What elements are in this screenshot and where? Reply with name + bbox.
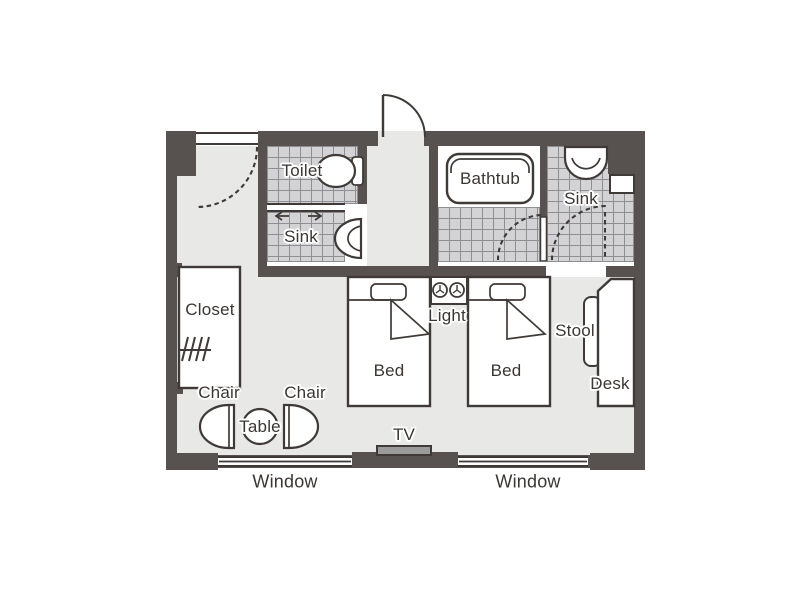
label-tv: TV: [393, 425, 415, 445]
label-sink-right: Sink: [564, 189, 598, 209]
tv-icon: [377, 446, 431, 455]
closet-icon: [179, 267, 240, 388]
label-bed-left: Bed: [374, 361, 405, 381]
label-closet: Closet: [185, 300, 234, 320]
label-chair-right: Chair: [284, 383, 326, 403]
label-light: Light: [428, 306, 466, 326]
bed-right-icon: [468, 277, 550, 406]
entry-door-icon: [383, 95, 425, 137]
floor-plan: Toilet Sink Bathtub Sink Closet Chair Ch…: [0, 0, 800, 600]
label-desk: Desk: [590, 374, 630, 394]
fixtures-layer: [0, 0, 800, 600]
bathtub-door-icon: [498, 215, 547, 261]
label-table: Table: [239, 417, 281, 437]
bed-left-icon: [348, 277, 430, 406]
toilet-icon: [317, 155, 363, 187]
door-swing-arc-left: [197, 147, 257, 207]
chair-right-icon: [284, 405, 318, 448]
label-bed-right: Bed: [491, 361, 522, 381]
sliding-door-arrows-icon: [276, 212, 321, 220]
label-toilet: Toilet: [282, 161, 323, 181]
label-sink-left: Sink: [284, 227, 318, 247]
sink-room-door-swing: [552, 206, 606, 260]
label-bathtub: Bathtub: [460, 169, 520, 189]
sink-left-icon: [335, 219, 361, 258]
label-window-right: Window: [495, 472, 560, 493]
label-chair-left: Chair: [198, 383, 240, 403]
chair-left-icon: [200, 405, 234, 448]
label-stool: Stool: [555, 321, 595, 341]
label-window-left: Window: [252, 472, 317, 493]
sink-right-icon: [565, 147, 634, 193]
